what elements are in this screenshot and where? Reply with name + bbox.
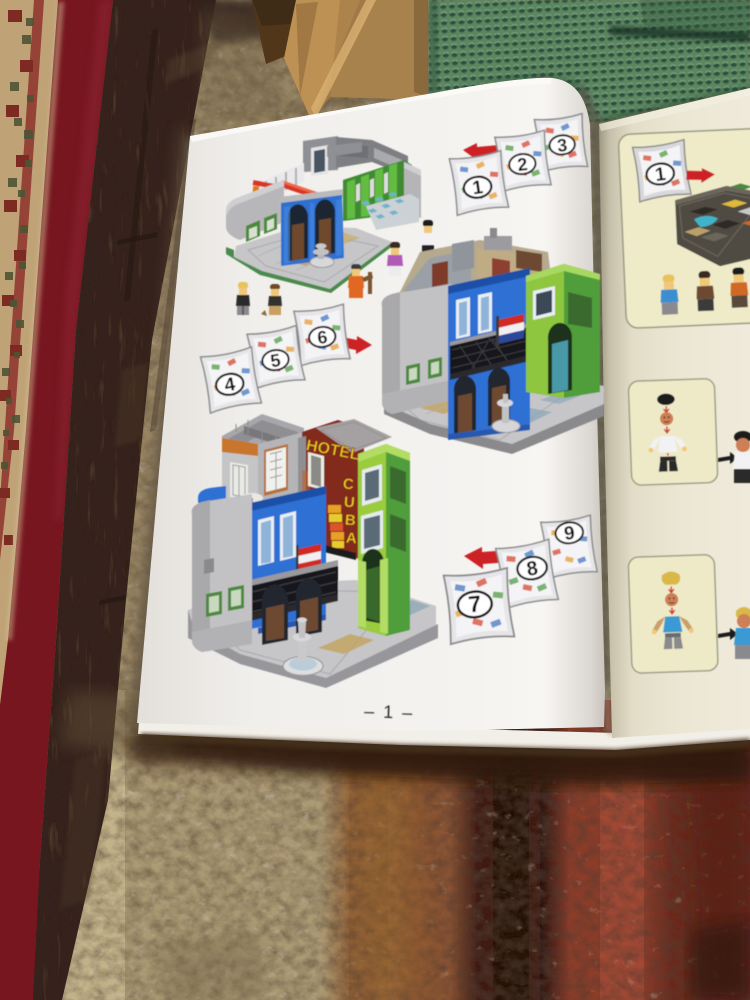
svg-text:U: U: [343, 494, 355, 512]
svg-text:3: 3: [556, 135, 568, 156]
svg-text:B: B: [344, 512, 356, 530]
svg-text:C: C: [342, 476, 354, 494]
svg-text:– 1 –: – 1 –: [364, 701, 415, 723]
svg-text:7: 7: [467, 590, 482, 617]
svg-text:A: A: [345, 530, 357, 548]
